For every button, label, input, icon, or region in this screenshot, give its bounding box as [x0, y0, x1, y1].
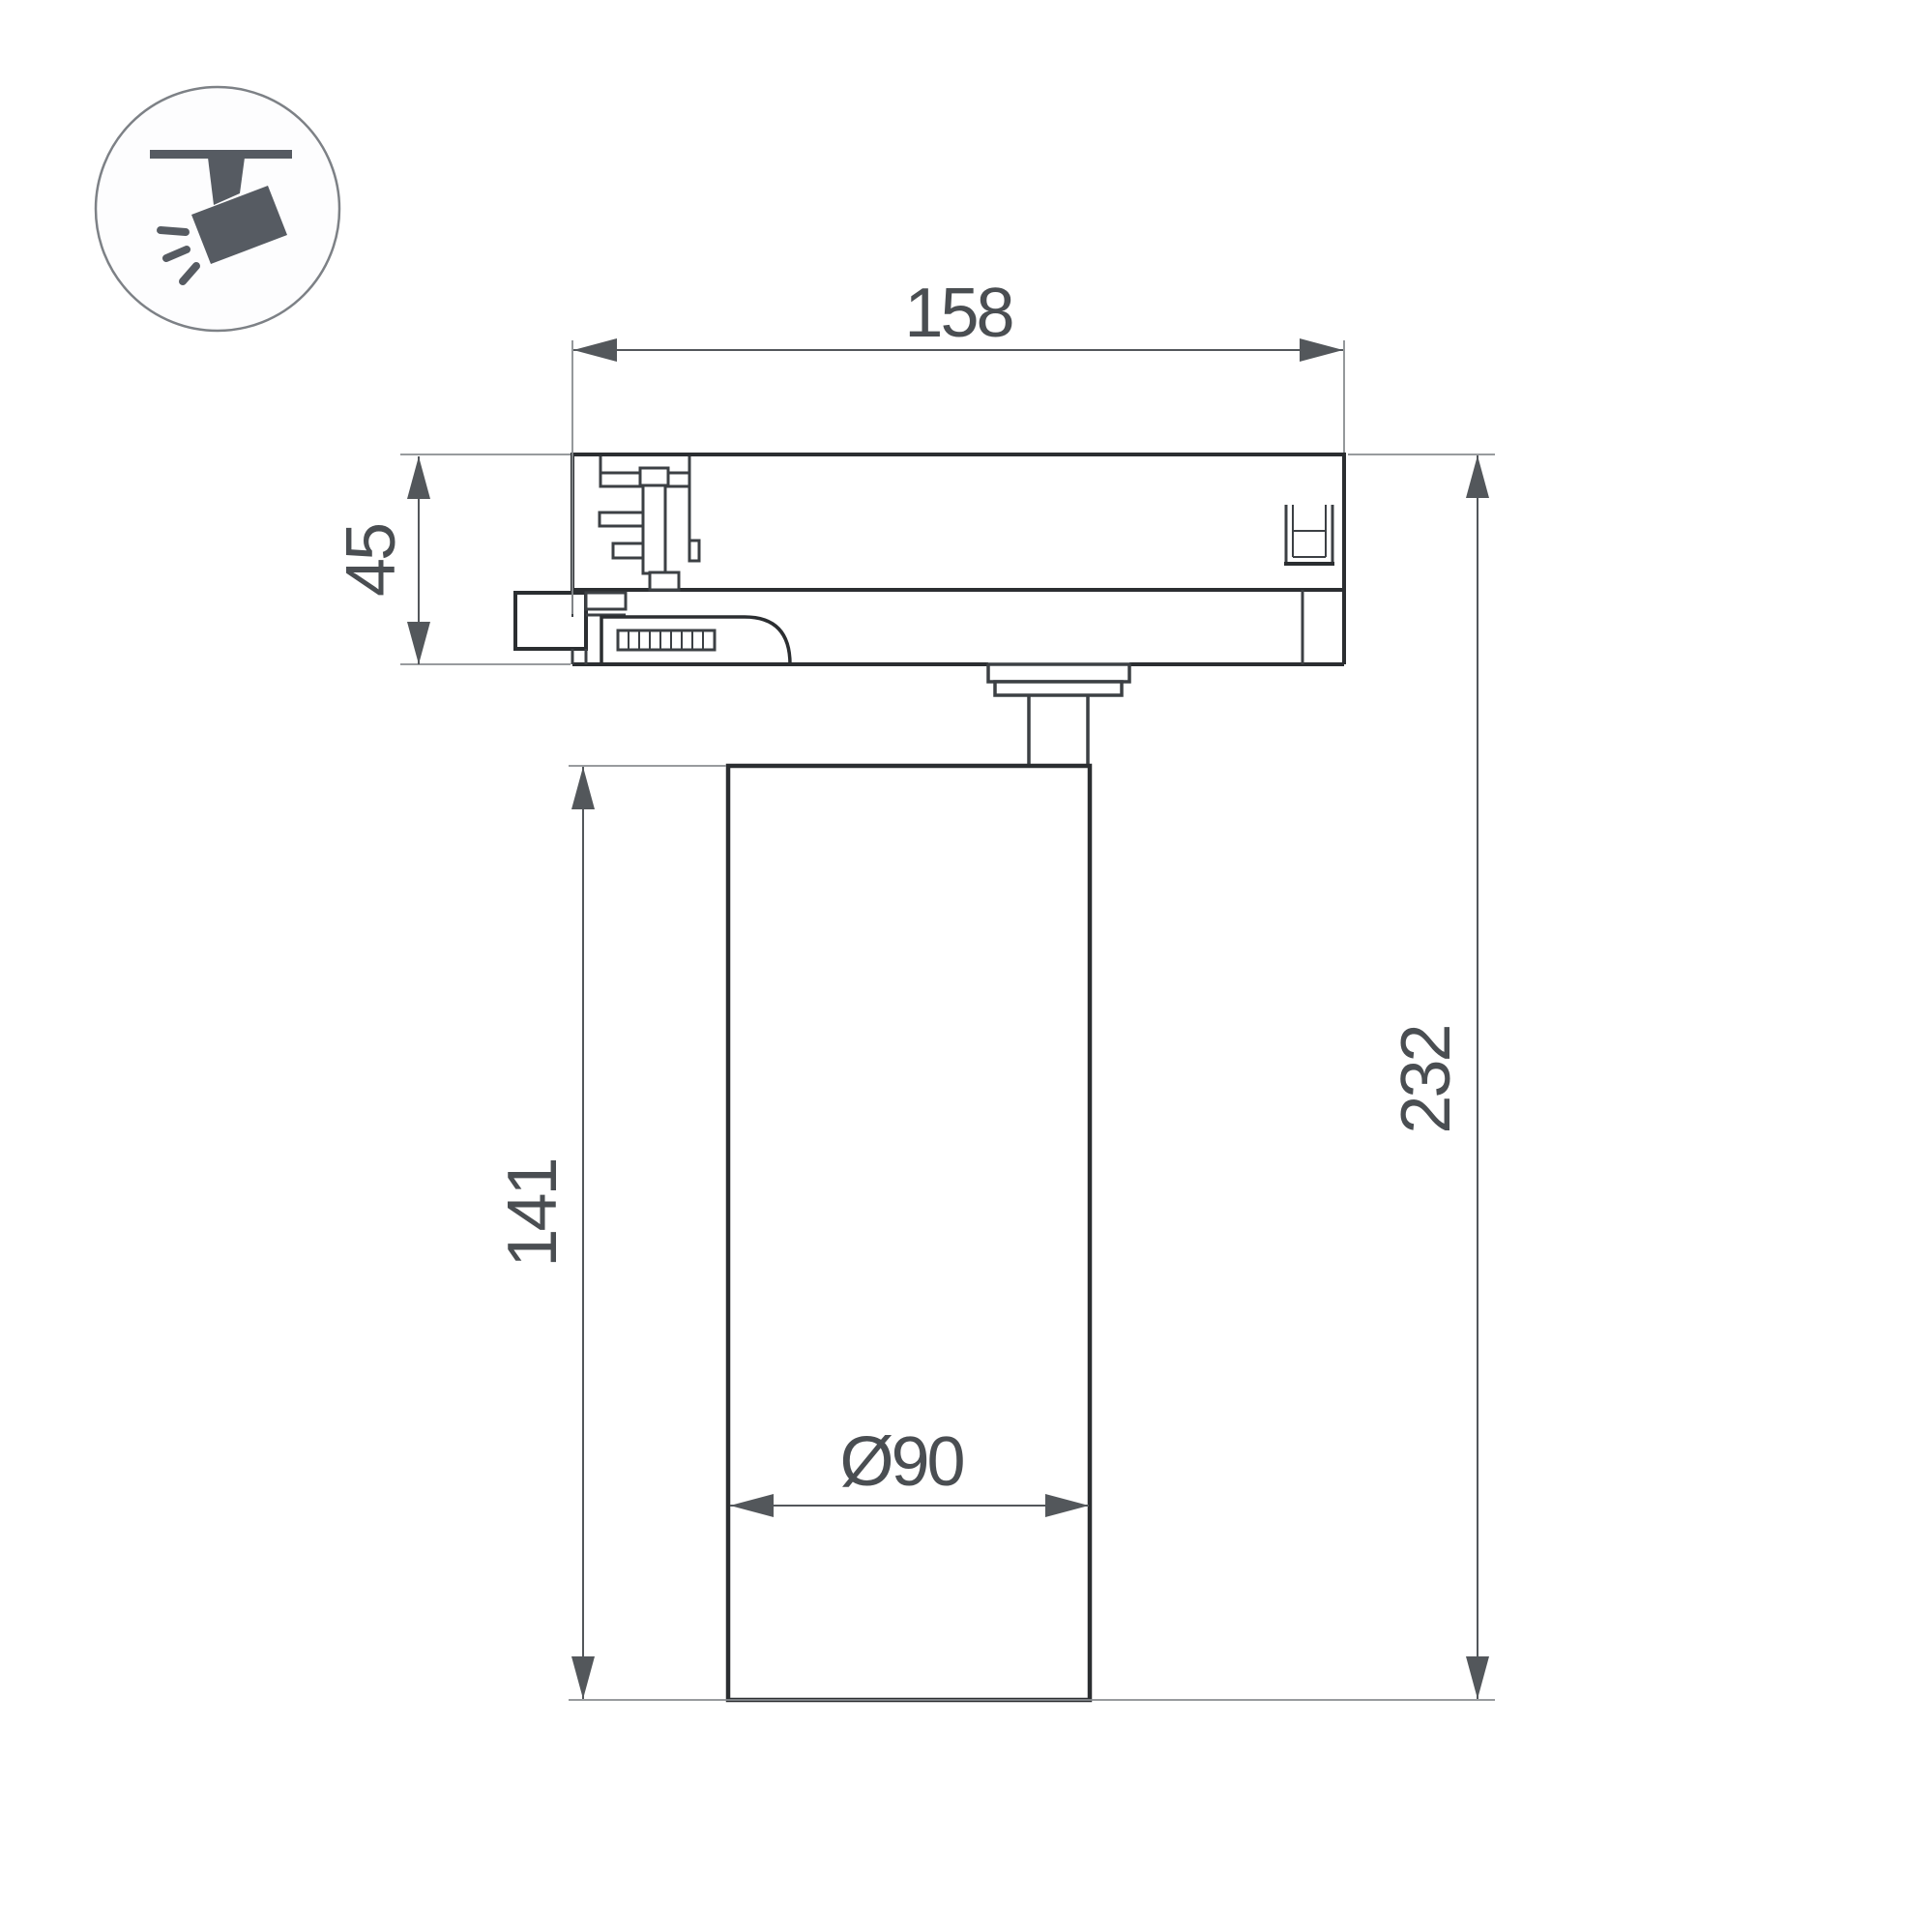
dim-label-141: 141 [494, 1159, 571, 1267]
track-spotlight-icon [96, 87, 339, 331]
dimension-height-141: 141 [494, 766, 726, 1699]
locking-latch [515, 593, 626, 664]
track-adapter [515, 454, 1344, 766]
contact-tab [689, 541, 699, 561]
lamp-body [728, 766, 1090, 1700]
latch-box [515, 593, 586, 649]
contact-prong-2 [600, 512, 643, 526]
dimension-drawing: 158 45 141 232 Ø90 [0, 0, 1932, 1932]
technical-drawing-page: 158 45 141 232 Ø90 [0, 0, 1932, 1932]
contact-prong-3 [613, 543, 643, 558]
swivel-mount [988, 664, 1129, 766]
contact-foot [650, 572, 679, 590]
flange-step-1 [988, 664, 1129, 682]
dim-label-158: 158 [904, 275, 1011, 352]
icon-track-bar [150, 150, 292, 159]
flange-step-2 [995, 682, 1122, 695]
latch-clip [586, 593, 626, 609]
contact-screw [643, 485, 665, 573]
dim-label-45: 45 [333, 524, 410, 597]
contact-cap [640, 468, 668, 485]
dim-label-232: 232 [1388, 1026, 1465, 1133]
adjustment-slider [618, 630, 715, 650]
dim-label-diameter: Ø90 [839, 1423, 963, 1501]
lever-housing [601, 617, 790, 664]
